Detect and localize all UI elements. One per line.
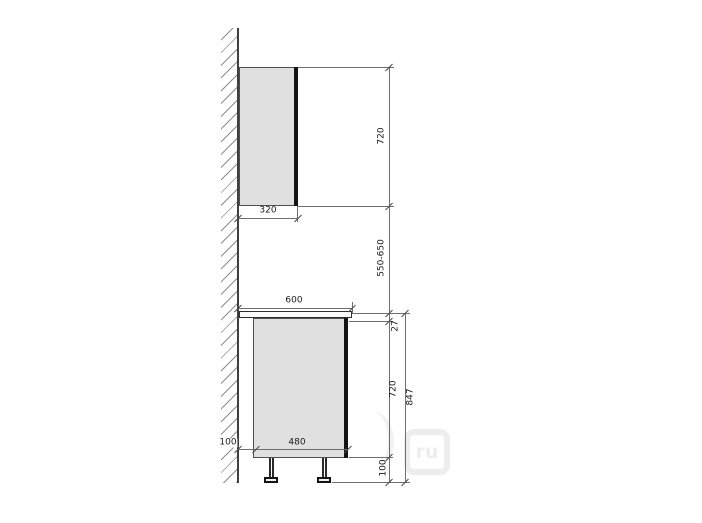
base-cabinet-back-leg [269,458,274,478]
watermark-ru-text: ru [416,443,439,462]
extension-line-floor [332,482,410,483]
dim-label-480: 480 [288,439,305,448]
wall-cabinet [239,67,298,206]
base-cabinet-front-leg [322,458,327,478]
wall-line [237,28,239,483]
dim-label-550-650: 550-650 [378,239,387,277]
wall-cabinet-door [294,67,298,206]
base-cabinet-back-leg-foot [264,477,278,483]
dim-line-320 [238,218,298,219]
dim-label-320: 320 [259,207,276,216]
dim-line-vertical-main [389,67,390,482]
drawing-canvas: ru 320 600 100 480 720 550-650 [0,0,702,523]
base-cabinet-front-leg-foot [317,477,331,483]
dim-label-100-gap: 100 [218,439,237,448]
dim-label-720-base-cabinet: 720 [390,380,399,397]
wall-hatching [221,28,237,483]
dim-label-27: 27 [392,320,401,331]
extension-line-wall-cabinet-top [298,67,394,68]
base-cabinet-door [344,318,348,458]
watermark-ru-badge: ru [404,429,450,475]
dim-label-600: 600 [285,297,302,306]
dim-label-100-leg: 100 [380,459,389,476]
dim-label-720-wall-cabinet: 720 [378,127,387,144]
dim-label-847: 847 [407,388,416,405]
extension-line-wall-cabinet-bottom [298,206,394,207]
countertop [239,311,352,318]
extension-line-countertop-top [352,313,410,314]
dim-line-600 [238,308,352,309]
